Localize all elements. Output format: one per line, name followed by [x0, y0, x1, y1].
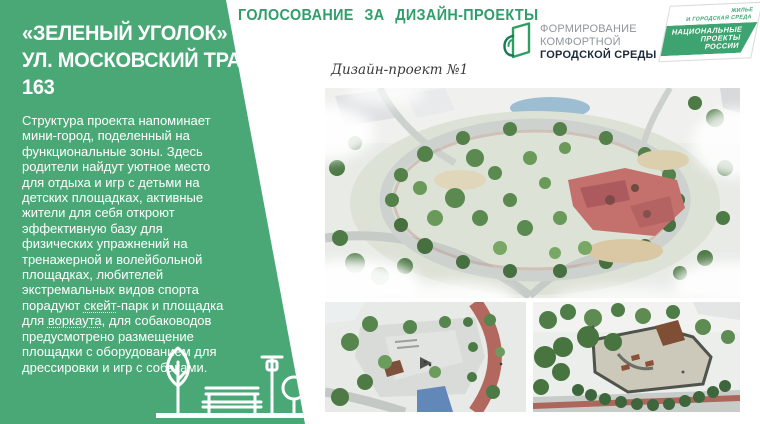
np-band: НАЦИОНАЛЬНЫЕ ПРОЕКТЫ РОССИИ	[661, 22, 758, 56]
description-word-skate: скейт	[84, 298, 117, 313]
dog-park-render	[533, 302, 740, 412]
fkgs-logo: ФОРМИРОВАНИЕ КОМФОРТНОЙ ГОРОДСКОЙ СРЕДЫ	[502, 21, 657, 63]
fkgs-line2: КОМФОРТНОЙ	[540, 36, 657, 49]
national-projects-logo: ЖИЛЬЕ И ГОРОДСКАЯ СРЕДА НАЦИОНАЛЬНЫЕ ПРО…	[658, 2, 760, 63]
bench-icon	[203, 388, 261, 413]
sidebar: «ЗЕЛЕНЫЙ УГОЛОК» ПО УЛ. МОСКОВСКИЙ ТРАКТ…	[0, 0, 320, 424]
fkgs-line1: ФОРМИРОВАНИЕ	[540, 23, 657, 36]
tree-icon	[167, 348, 188, 413]
aerial-park-overview-render	[325, 88, 740, 298]
description-text: Структура проекта напоминает мини-город,…	[22, 113, 211, 313]
np-sector-label: ЖИЛЬЕ И ГОРОДСКАЯ СРЕДА	[667, 3, 760, 24]
skate-plaza-render	[325, 302, 526, 412]
park-pictogram	[156, 342, 308, 420]
project-description: Структура проекта напоминает мини-город,…	[22, 113, 225, 375]
page-title: «ЗЕЛЕНЫЙ УГОЛОК» ПО УЛ. МОСКОВСКИЙ ТРАКТ…	[22, 20, 269, 101]
project-number-label: Дизайн-проект №1	[331, 62, 468, 78]
description-word-workout: воркаута	[48, 313, 102, 328]
slide: «ЗЕЛЕНЫЙ УГОЛОК» ПО УЛ. МОСКОВСКИЙ ТРАКТ…	[0, 0, 760, 424]
page-title-line3: 163	[22, 74, 269, 101]
fkgs-sprout-house-icon	[502, 21, 532, 63]
fkgs-logo-text: ФОРМИРОВАНИЕ КОМФОРТНОЙ ГОРОДСКОЙ СРЕДЫ	[540, 23, 657, 62]
page-title-line2: УЛ. МОСКОВСКИЙ ТРАКТ,	[22, 47, 269, 74]
page-title-line1: «ЗЕЛЕНЫЙ УГОЛОК» ПО	[22, 20, 269, 47]
fkgs-line3: ГОРОДСКОЙ СРЕДЫ	[540, 49, 657, 62]
round-tree-icon	[283, 377, 305, 413]
slide-header-title: ГОЛОСОВАНИЕ ЗА ДИЗАЙН-ПРОЕКТЫ	[238, 7, 538, 25]
pictogram-ground-line	[156, 413, 308, 418]
street-lamp-icon	[262, 357, 282, 413]
